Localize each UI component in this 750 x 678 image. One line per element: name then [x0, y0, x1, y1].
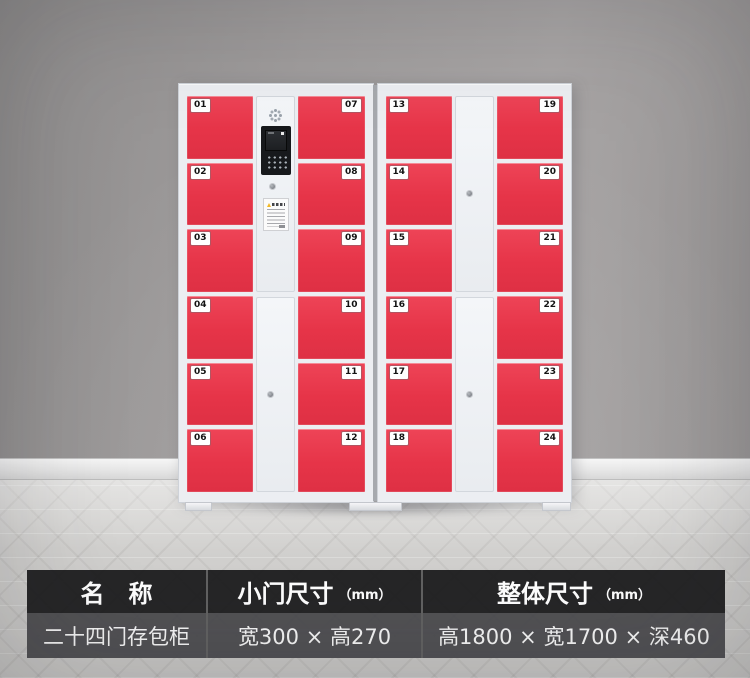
spec-table: 名 称 小门尺寸（mm） 整体尺寸（mm） 二十四门存包柜 宽300 × 高27… — [27, 570, 725, 658]
locker-door: 02 — [187, 163, 253, 226]
locker-door: 06 — [187, 429, 253, 492]
door-number-plate: 20 — [540, 166, 559, 179]
keyhole-icon — [268, 392, 273, 397]
locker-door: 10 — [298, 296, 364, 359]
blank-panel-upper — [455, 96, 494, 292]
door-number-plate: 23 — [540, 366, 559, 379]
door-number-plate: 07 — [342, 99, 361, 112]
locker-door: 11 — [298, 363, 364, 426]
door-column-07-12: 07 08 09 10 11 12 — [298, 96, 364, 492]
locker-door: 12 — [298, 429, 364, 492]
door-number-plate: 12 — [342, 432, 361, 445]
door-number-plate: 17 — [390, 366, 409, 379]
locker-door: 23 — [497, 363, 563, 426]
spec-header-overall-size: 整体尺寸（mm） — [423, 570, 725, 613]
warning-triangle-icon — [267, 203, 271, 207]
header-label: 名 称 — [81, 574, 153, 609]
spec-value-name: 二十四门存包柜 — [27, 613, 208, 658]
locker-unit-right: 13 14 15 16 17 18 19 20 — [377, 83, 573, 503]
spec-value-door-size: 宽300 × 高270 — [208, 613, 423, 658]
locker-door: 14 — [386, 163, 452, 226]
locker-door: 03 — [187, 229, 253, 292]
cabinet-foot — [542, 502, 571, 511]
locker-door: 04 — [187, 296, 253, 359]
door-column-01-06: 01 02 03 04 05 06 — [187, 96, 253, 492]
cabinet-foot — [185, 502, 212, 511]
locker-door: 22 — [497, 296, 563, 359]
locker-door: 13 — [386, 96, 452, 159]
product-scene: 01 02 03 04 05 06 — [0, 0, 750, 678]
door-number-plate: 02 — [191, 166, 210, 179]
door-number-plate: 13 — [390, 99, 409, 112]
door-number-plate: 15 — [390, 232, 409, 245]
locker-door: 18 — [386, 429, 452, 492]
header-unit: （mm） — [338, 580, 391, 603]
unit-seam — [373, 85, 377, 501]
label-text-lines — [267, 209, 285, 227]
door-number-plate: 09 — [342, 232, 361, 245]
control-terminal — [261, 126, 291, 175]
door-number-plate: 03 — [191, 232, 210, 245]
keyhole-icon — [467, 191, 472, 196]
keyhole-icon — [467, 392, 472, 397]
locker-door: 09 — [298, 229, 364, 292]
locker-door: 21 — [497, 229, 563, 292]
control-panel-lower — [256, 297, 295, 493]
locker-door: 16 — [386, 296, 452, 359]
locker-door: 20 — [497, 163, 563, 226]
door-number-plate: 05 — [191, 366, 210, 379]
locker-unit-left: 01 02 03 04 05 06 — [178, 83, 374, 503]
control-panel-column — [256, 96, 295, 492]
terminal-display — [265, 130, 287, 151]
control-panel-upper — [256, 96, 295, 292]
door-number-plate: 04 — [191, 299, 210, 312]
camera-dot-icon — [281, 132, 284, 135]
instruction-label — [263, 198, 289, 231]
door-number-plate: 16 — [390, 299, 409, 312]
locker-door: 05 — [187, 363, 253, 426]
header-label: 整体尺寸 — [497, 574, 593, 609]
spec-value-overall-size: 高1800 × 宽1700 × 深460 — [423, 613, 725, 658]
door-number-plate: 10 — [342, 299, 361, 312]
door-number-plate: 19 — [540, 99, 559, 112]
blank-panel-column — [455, 96, 494, 492]
locker-door: 01 — [187, 96, 253, 159]
locker-door: 24 — [497, 429, 563, 492]
label-title-glyphs — [272, 203, 285, 206]
door-number-plate: 24 — [540, 432, 559, 445]
door-number-plate: 01 — [191, 99, 210, 112]
cabinet-foot — [349, 502, 402, 511]
locker-cabinet: 01 02 03 04 05 06 — [178, 83, 572, 503]
keyhole-icon — [270, 184, 275, 189]
locker-door: 08 — [298, 163, 364, 226]
locker-door: 19 — [497, 96, 563, 159]
header-label: 小门尺寸 — [237, 574, 333, 609]
spec-header-door-size: 小门尺寸（mm） — [208, 570, 423, 613]
speaker-grille-icon — [274, 114, 277, 117]
spec-header-name: 名 称 — [27, 570, 208, 613]
door-number-plate: 08 — [342, 166, 361, 179]
door-number-plate: 06 — [191, 432, 210, 445]
header-unit: （mm） — [598, 580, 651, 603]
door-number-plate: 11 — [342, 366, 361, 379]
locker-door: 15 — [386, 229, 452, 292]
terminal-keypad — [265, 154, 287, 169]
door-number-plate: 22 — [540, 299, 559, 312]
door-number-plate: 21 — [540, 232, 559, 245]
door-number-plate: 14 — [390, 166, 409, 179]
locker-door: 17 — [386, 363, 452, 426]
door-column-13-18: 13 14 15 16 17 18 — [386, 96, 452, 492]
locker-door: 07 — [298, 96, 364, 159]
door-column-19-24: 19 20 21 22 23 24 — [497, 96, 563, 492]
door-number-plate: 18 — [390, 432, 409, 445]
blank-panel-lower — [455, 297, 494, 493]
